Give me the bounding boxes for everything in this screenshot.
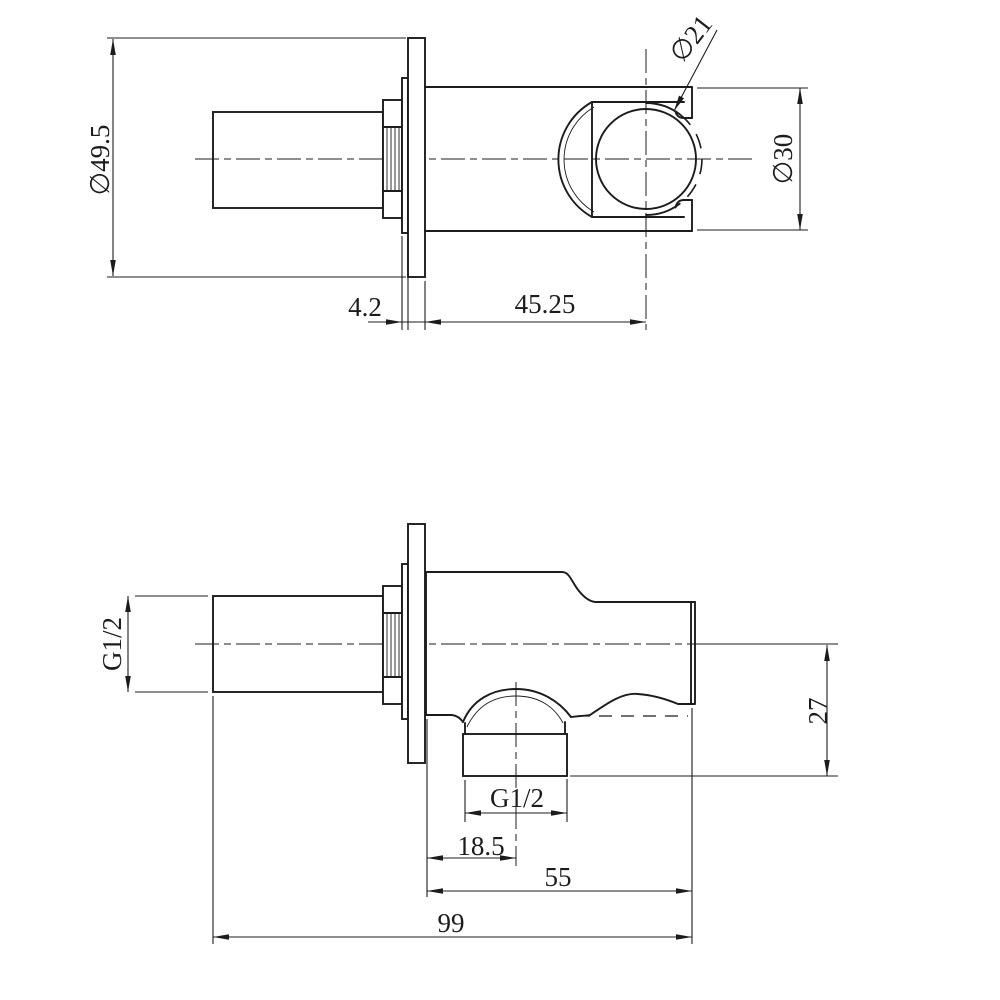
drawing-page: ∅49.5 4.2 45.25 ∅21 — [0, 0, 1000, 1000]
locknut — [383, 100, 402, 218]
inlet-thread-label: G1/2 — [97, 617, 127, 671]
holder-offset-label: 45.25 — [515, 289, 576, 319]
outlet-thread-label: G1/2 — [490, 783, 544, 813]
locknut-2 — [383, 586, 402, 704]
wall-flange — [408, 38, 425, 277]
technical-drawing: ∅49.5 4.2 45.25 ∅21 — [0, 0, 1000, 1000]
body-length-label: 55 — [545, 862, 572, 892]
flange-thickness-label: 4.2 — [348, 292, 382, 322]
outlet-drop-label: 27 — [803, 698, 833, 725]
overall-length-label: 99 — [438, 908, 465, 938]
wall-flange-2 — [408, 524, 425, 763]
outlet-offset-label: 18.5 — [457, 831, 504, 861]
flange-diameter-label: ∅49.5 — [85, 125, 115, 196]
body-diameter-label: ∅30 — [768, 134, 798, 185]
